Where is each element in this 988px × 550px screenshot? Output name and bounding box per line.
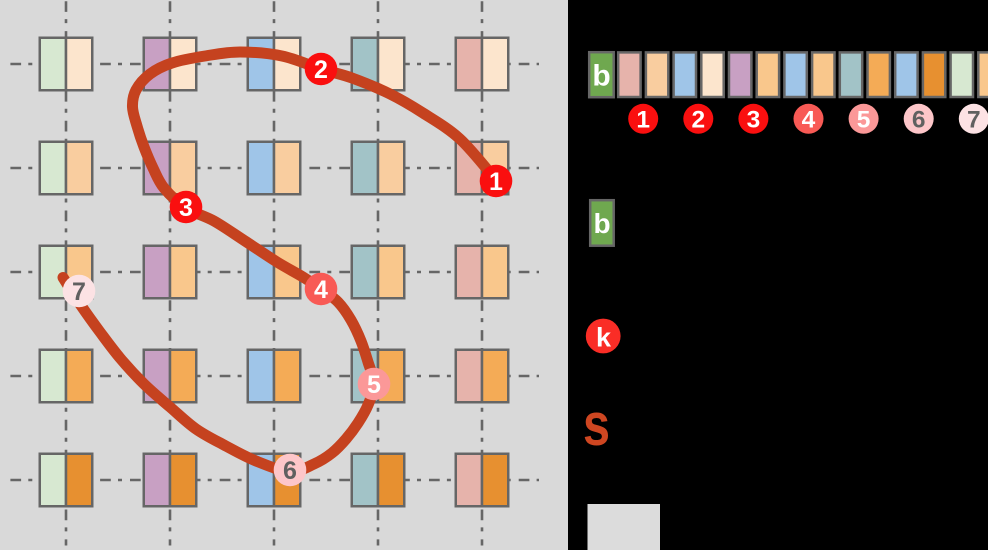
svg-text:5: 5 (857, 107, 871, 134)
svg-text:7: 7 (967, 107, 981, 134)
svg-text:3: 3 (179, 194, 193, 222)
svg-text:5: 5 (367, 371, 381, 399)
svg-text:3: 3 (747, 107, 761, 134)
svg-text:k: k (596, 323, 612, 353)
svg-text:b: b (592, 60, 610, 93)
svg-text:b: b (593, 208, 610, 239)
svg-text:2: 2 (691, 107, 705, 134)
svg-text:4: 4 (314, 276, 328, 304)
svg-text:1: 1 (489, 168, 503, 196)
svg-text:7: 7 (72, 278, 86, 306)
svg-text:2: 2 (314, 56, 328, 84)
svg-text:6: 6 (912, 107, 926, 134)
svg-text:1: 1 (636, 107, 650, 134)
svg-text:6: 6 (283, 457, 297, 485)
svg-text:s: s (583, 391, 610, 458)
svg-text:4: 4 (802, 107, 816, 134)
